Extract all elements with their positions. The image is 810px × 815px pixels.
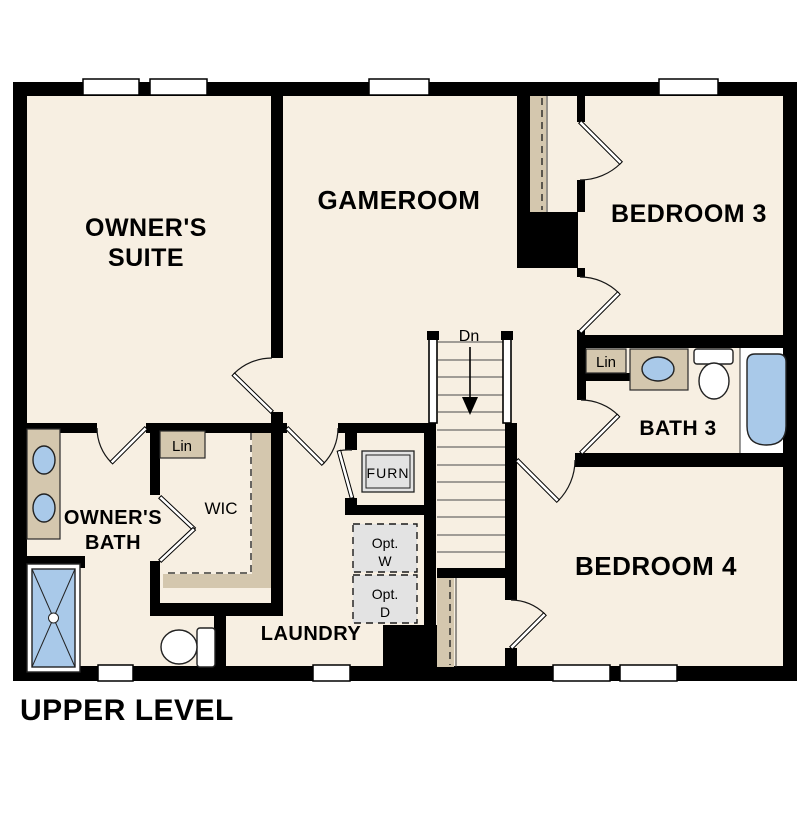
wall-chase-block [383,625,437,669]
window [553,665,610,681]
owners-suite-label-line2: SUITE [108,244,184,272]
wall-segment [577,335,797,348]
linen-label: Lin [172,438,192,455]
window [313,665,350,681]
bath3-label: BATH 3 [639,417,716,440]
window [369,79,429,95]
wall-segment [577,373,630,381]
opt-dryer-label-line1: Opt. [372,586,398,602]
floor-plan-page: Dn [0,0,810,810]
wall-segment [214,616,226,668]
wall-segment [505,423,517,600]
wall-segment [338,423,430,433]
plan-title: UPPER LEVEL [20,694,234,727]
window [620,665,677,681]
owners-bath-label-line1: OWNER'S [64,507,162,529]
wall-segment [577,381,586,400]
wall-segment [577,348,586,373]
wall-segment [575,453,797,467]
stair-rail [429,334,437,423]
wall-segment [271,96,283,358]
window [83,79,139,95]
wall-segment [271,433,283,603]
owners-suite-label-line1: OWNER'S [85,214,207,242]
sink-icon [33,446,55,474]
sink-icon [33,494,55,522]
wic-shelf [163,574,252,588]
wall-segment [577,96,585,122]
window [150,79,207,95]
wall-segment [437,568,510,578]
wic-label: WIC [204,499,237,518]
bedroom3-label: BEDROOM 3 [611,200,767,228]
wall-segment [345,505,430,515]
gameroom-label: GAMEROOM [318,185,481,215]
bedroom3-closet-shelf [530,96,546,212]
bathtub-icon [747,354,786,445]
sink-icon [642,357,674,381]
floor-plan: Dn [0,0,810,810]
window [659,79,718,95]
stair-newel [427,331,439,340]
shower-icon [27,564,80,672]
wall-segment [345,433,357,450]
wall-chase-block [517,212,578,268]
furnace-label: FURN [367,465,410,481]
linen-label: Lin [596,354,616,371]
wall-segment [577,268,585,277]
window [98,665,133,681]
wall-segment [150,433,160,495]
stairs-down-label: Dn [459,328,479,345]
opt-washer-label-line1: Opt. [372,535,398,551]
wall-segment [577,180,585,212]
stair-newel [501,331,513,340]
wall-segment [13,82,27,681]
wall-segment [505,648,517,667]
bedroom4-label: BEDROOM 4 [575,551,737,581]
wic-shelf [252,433,271,588]
opt-washer-label-line2: W [378,553,392,569]
wall-segment [150,603,283,616]
bedroom4-closet-shelf [437,578,454,667]
wall-segment [424,423,436,625]
owners-bath-label-line2: BATH [85,532,141,554]
opt-dryer-label-line2: D [380,604,390,620]
stair-rail [503,334,511,423]
laundry-label: LAUNDRY [261,623,362,645]
wall-segment [517,96,530,212]
toilet-icon [161,628,215,667]
